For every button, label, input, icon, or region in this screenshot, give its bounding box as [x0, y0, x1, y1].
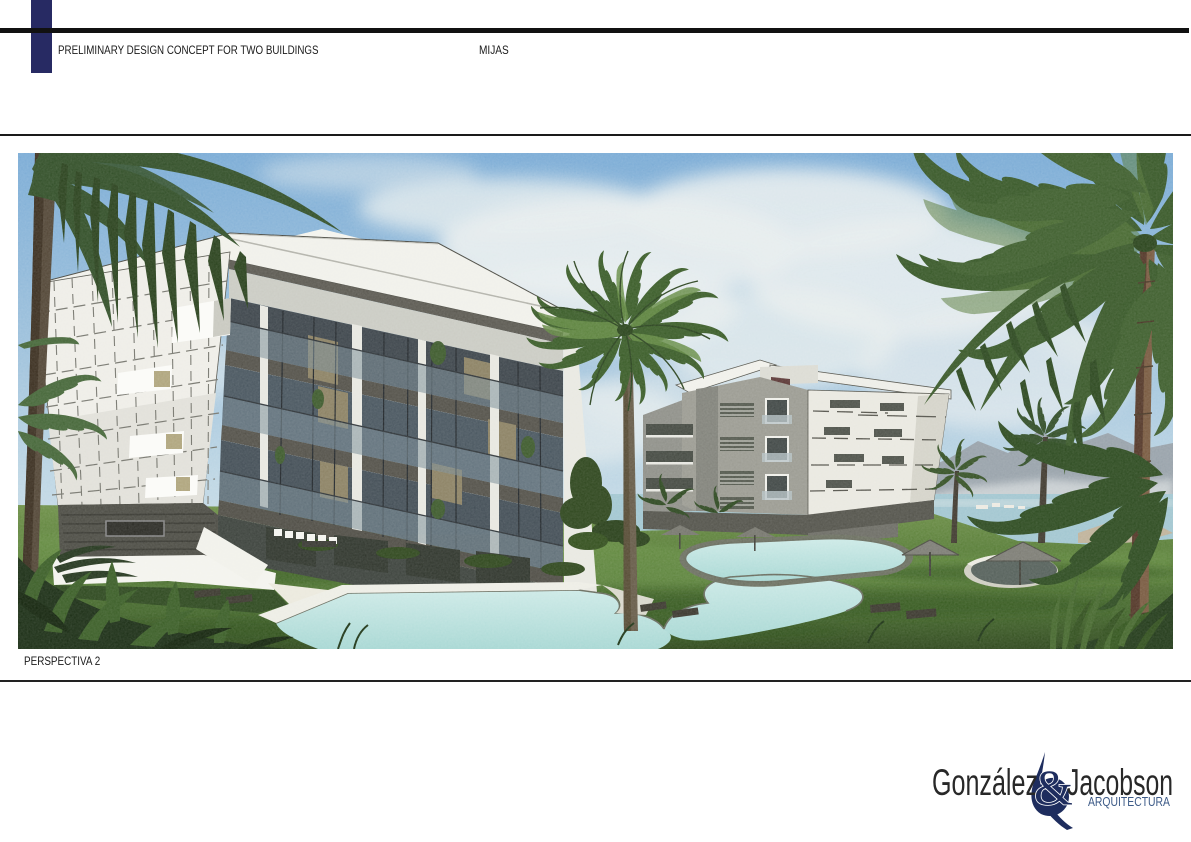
svg-text:González: González [932, 762, 1038, 803]
svg-text:&: & [1034, 759, 1073, 815]
svg-text:ARQUITECTURA: ARQUITECTURA [1088, 795, 1171, 809]
